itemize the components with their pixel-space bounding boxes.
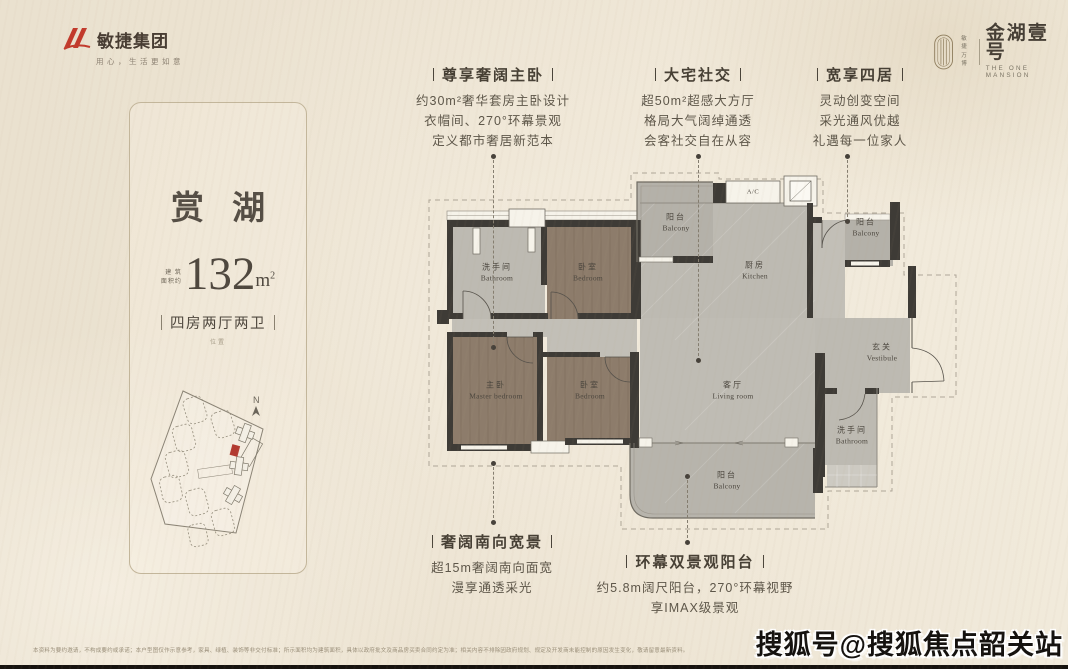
- brand-right-name: 金湖壹号: [986, 24, 1068, 62]
- leader-dot: [685, 474, 690, 479]
- callout-four-rooms: 宽享四居 灵动创变空间 采光通风优越 礼遇每一位家人: [760, 64, 960, 151]
- area-label: 面积约: [161, 278, 182, 288]
- layout-text: 四房两厅两卫: [170, 312, 266, 333]
- brand-right-mini: 敏捷 万博: [961, 35, 973, 68]
- leader-dot: [685, 540, 690, 545]
- unit-layout: 四房两厅两卫: [130, 312, 306, 333]
- callout-panorama-balcony: 环幕双景观阳台 约5.8m阔尺阳台，270°环幕视野 享IMAX级景观: [555, 551, 835, 619]
- disclaimer-text: 本资料为要约邀请，不构成要约或承诺；本户型图仅作示意参考，家具、绿植、装饰等非交…: [33, 646, 785, 654]
- leader-line: [687, 480, 688, 538]
- unit-area: 建 筑 面积约 132 m2: [130, 255, 306, 295]
- layout-note: 位置: [130, 337, 306, 346]
- leader-dot: [845, 154, 850, 159]
- area-value: 132: [185, 255, 256, 295]
- leader-dot: [696, 154, 701, 159]
- brand-divider: [979, 39, 980, 65]
- callout-master-bedroom: 尊享奢阔主卧 约30m²奢华套房主卧设计 衣帽间、270°环幕景观 定义都市奢居…: [373, 64, 613, 151]
- leader-dot: [491, 154, 496, 159]
- leader-line: [493, 467, 494, 518]
- divider: [274, 315, 275, 330]
- poster: 敏捷集团 用心，生活更如意 敏捷 万博 金湖壹号 THE ONE MANSION…: [0, 0, 1068, 669]
- leader-dot: [491, 345, 496, 350]
- room-label-kitchen: 厨房Kitchen: [742, 260, 768, 281]
- leader-dot: [845, 219, 850, 224]
- brand-left-slogan: 用心，生活更如意: [96, 56, 242, 67]
- room-label-balcony-top-right: 阳台Balcony: [852, 217, 879, 238]
- leader-line: [698, 160, 699, 356]
- area-unit: m2: [255, 270, 275, 292]
- watermark: 搜狐号@搜狐焦点韶关站: [756, 623, 1063, 662]
- leader-dot: [491, 461, 496, 466]
- leader-line: [493, 160, 494, 344]
- site-plan: N: [143, 381, 293, 571]
- leader-dot: [491, 520, 496, 525]
- brand-right-name-en: THE ONE MANSION: [986, 65, 1068, 79]
- brand-right-tag2: 万博: [961, 52, 973, 69]
- brand-left-name: 敏捷集团: [97, 27, 169, 52]
- room-label-bathroom-right: 洗手间Bathroom: [836, 425, 868, 446]
- floor-plan: 洗手间Bathroom 卧室Bedroom 阳台Balcony A/C 厨房Ki…: [425, 170, 960, 535]
- leader-dot: [696, 358, 701, 363]
- room-label-master-bedroom: 主卧Master bedroom: [469, 380, 523, 401]
- room-label-balcony-top-left: 阳台Balcony: [662, 212, 689, 233]
- room-label-balcony-bottom: 阳台Balcony: [713, 470, 740, 491]
- leader-line: [847, 160, 848, 217]
- brand-left: 敏捷集团 用心，生活更如意: [62, 26, 242, 67]
- agile-logo-icon: [62, 26, 92, 52]
- unit-title: 赏 湖: [130, 181, 306, 229]
- bottom-bar: [0, 665, 1068, 669]
- area-label: 建 筑: [161, 269, 182, 279]
- room-label-bedroom-2: 卧室Bedroom: [575, 380, 605, 401]
- room-label-bedroom-top: 卧室Bedroom: [573, 262, 603, 283]
- compass-n: N: [253, 395, 260, 405]
- compass-arrow-icon: [252, 406, 260, 416]
- room-label-bathroom-top: 洗手间Bathroom: [481, 262, 513, 283]
- divider: [161, 315, 162, 330]
- room-label-ac: A/C: [747, 189, 759, 196]
- brand-right-tag1: 敏捷: [961, 35, 973, 52]
- room-label-living-room: 客厅Living room: [712, 380, 753, 401]
- room-label-vestibule: 玄关Vestibule: [867, 342, 898, 363]
- unit-card: 赏 湖 建 筑 面积约 132 m2 四房两厅两卫 位置: [129, 102, 307, 574]
